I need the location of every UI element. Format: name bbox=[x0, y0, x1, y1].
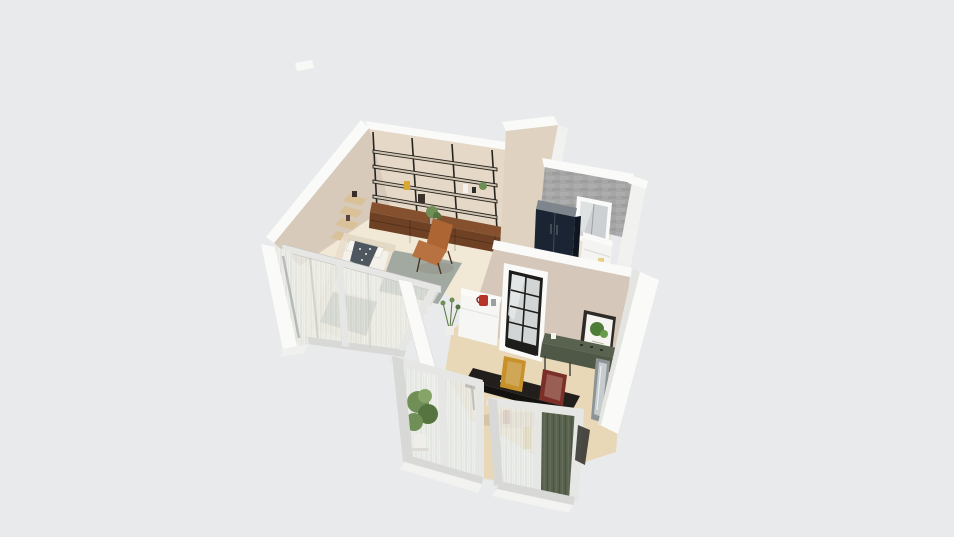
white-kitchen-counter bbox=[458, 288, 502, 346]
corner-shelf-frame-2 bbox=[346, 215, 350, 221]
counter-gray-item bbox=[491, 299, 496, 306]
shelf-decor-white-vase bbox=[463, 184, 468, 193]
mustard-picture-frame bbox=[500, 356, 526, 392]
shelf-decor-dark-frame bbox=[418, 194, 425, 203]
corner-shelf-frame-1 bbox=[352, 191, 357, 197]
shelf-decor-yellow-box bbox=[404, 181, 410, 190]
black-frame-glass-door bbox=[499, 263, 548, 362]
window-wall-right-section bbox=[486, 397, 590, 513]
right-section-post-mid bbox=[533, 404, 542, 495]
plant-pot bbox=[414, 434, 426, 449]
floorplan-3d-viewport[interactable] bbox=[0, 0, 954, 537]
maroon-picture-frame bbox=[539, 369, 567, 406]
desk-white-mug bbox=[551, 333, 556, 339]
shelf-decor-black-mug bbox=[472, 187, 476, 193]
left-section-post-right bbox=[475, 379, 484, 482]
render-canvas bbox=[0, 0, 954, 537]
shelf-decor-plant-top bbox=[479, 182, 487, 190]
